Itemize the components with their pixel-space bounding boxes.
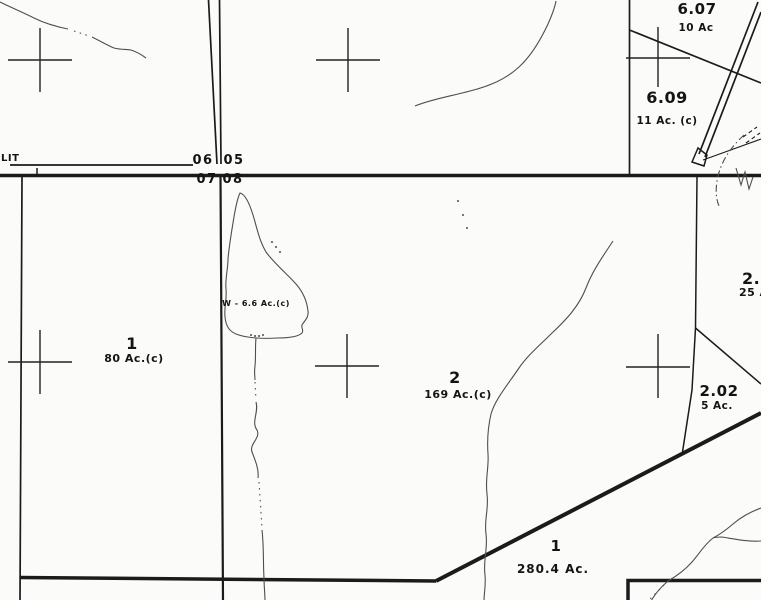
parcel-acreage-202: 5 Ac. <box>701 401 733 412</box>
pond-outline <box>225 193 308 338</box>
section-corner-cross-center <box>315 334 379 398</box>
parcel-acreage-2: 169 Ac.(c) <box>424 389 492 400</box>
parcel-number-609: 6.09 <box>646 90 687 106</box>
parcel-number-2: 2 <box>449 370 461 386</box>
parcel-acreage-1-west: 80 Ac.(c) <box>104 353 163 364</box>
section-number-08: 08 <box>222 173 243 186</box>
section-number-06: 06 <box>192 154 213 167</box>
road-double-line-left <box>209 0 218 164</box>
parcel-line-607-609-divider <box>630 30 761 83</box>
survey-dots <box>457 200 468 229</box>
edge-text-label: LIT <box>1 154 19 164</box>
stream-bottom-right <box>650 508 761 600</box>
stream-pond-outlet <box>252 338 265 600</box>
subdivision-outline-corner <box>628 581 761 600</box>
parcel-acreage-607: 10 Ac <box>678 23 713 34</box>
stream-top-left <box>0 2 146 58</box>
section-number-07: 07 <box>196 173 217 186</box>
dashed-continuation-mark-1 <box>743 127 757 137</box>
stream-top-middle <box>415 1 556 106</box>
parcel-acreage-609: 11 Ac. (c) <box>636 116 697 127</box>
parcel-number-202: 2.02 <box>699 384 738 399</box>
parcel-number-201: 2.0 <box>742 271 761 287</box>
boundary-line-bottom <box>20 578 436 582</box>
spur-line <box>703 139 761 160</box>
dash-dot-centerline <box>716 135 744 206</box>
parcel-line-right-vertical <box>696 177 698 328</box>
water-acreage-label: W - 6.6 Ac.(c) <box>222 300 290 308</box>
plat-map: LIT 06 05 07 08 6.07 10 Ac 6.09 11 Ac. (… <box>0 0 761 600</box>
parcel-line-202-west <box>683 328 696 452</box>
section-corner-cross-nw <box>8 28 72 92</box>
stream-zigzag <box>736 168 753 189</box>
section-corner-cross-w <box>8 330 72 394</box>
road-double-line-right <box>220 0 222 164</box>
parcel-line-202-north <box>696 328 761 384</box>
parcel-number-1-west: 1 <box>126 336 138 352</box>
parcel-number-607: 6.07 <box>677 2 716 17</box>
parcel-line-west-boundary <box>20 177 22 600</box>
parcel-acreage-201: 25 A <box>739 287 761 298</box>
section-line-07-08 <box>221 176 224 600</box>
section-corner-cross-n <box>316 28 380 92</box>
section-number-05: 05 <box>223 154 244 167</box>
parcel-number-1-south: 1 <box>551 539 562 554</box>
section-corner-cross-ne <box>626 27 690 87</box>
boundary-line-diagonal <box>436 413 761 581</box>
parcel-acreage-1-south: 280.4 Ac. <box>517 563 589 575</box>
section-corner-cross-e <box>626 334 690 398</box>
